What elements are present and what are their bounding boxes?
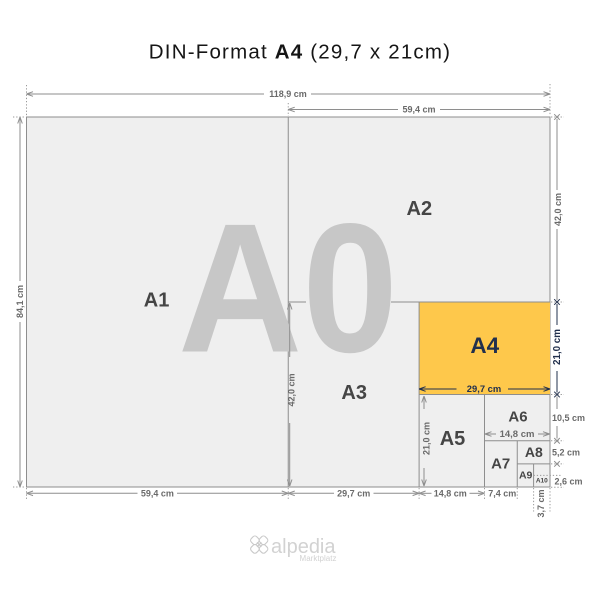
svg-text:3,7 cm: 3,7 cm <box>536 489 546 517</box>
svg-text:118,9 cm: 118,9 cm <box>269 89 307 99</box>
svg-text:2,6 cm: 2,6 cm <box>555 476 583 486</box>
svg-text:A2: A2 <box>407 198 433 220</box>
svg-text:7,4 cm: 7,4 cm <box>488 489 516 499</box>
svg-text:42,0 cm: 42,0 cm <box>553 193 563 226</box>
svg-text:A6: A6 <box>508 409 527 426</box>
svg-text:A4: A4 <box>470 333 499 358</box>
svg-text:59,4 cm: 59,4 cm <box>141 489 174 499</box>
svg-text:29,7 cm: 29,7 cm <box>467 383 501 394</box>
svg-text:84,1 cm: 84,1 cm <box>15 285 25 318</box>
svg-text:59,4 cm: 59,4 cm <box>402 105 435 115</box>
svg-text:14,8 cm: 14,8 cm <box>434 489 467 499</box>
svg-text:42,0 cm: 42,0 cm <box>287 373 297 406</box>
svg-text:5,2 cm: 5,2 cm <box>552 447 580 457</box>
svg-text:DIN-Format A4 (29,7 x 21cm): DIN-Format A4 (29,7 x 21cm) <box>149 41 451 64</box>
svg-text:29,7 cm: 29,7 cm <box>337 489 370 499</box>
svg-text:A8: A8 <box>525 444 543 460</box>
svg-text:21,0 cm: 21,0 cm <box>421 422 431 455</box>
svg-text:A0: A0 <box>178 185 398 391</box>
svg-text:A1: A1 <box>144 290 170 312</box>
svg-text:A7: A7 <box>491 456 510 473</box>
svg-text:Marktplatz: Marktplatz <box>300 554 337 563</box>
svg-text:21,0 cm: 21,0 cm <box>552 329 563 365</box>
svg-text:A3: A3 <box>341 382 367 404</box>
svg-text:14,8 cm: 14,8 cm <box>500 429 535 440</box>
svg-text:A10: A10 <box>536 478 548 485</box>
svg-text:A5: A5 <box>440 428 466 450</box>
svg-text:A9: A9 <box>519 469 533 481</box>
svg-text:10,5 cm: 10,5 cm <box>552 413 585 423</box>
